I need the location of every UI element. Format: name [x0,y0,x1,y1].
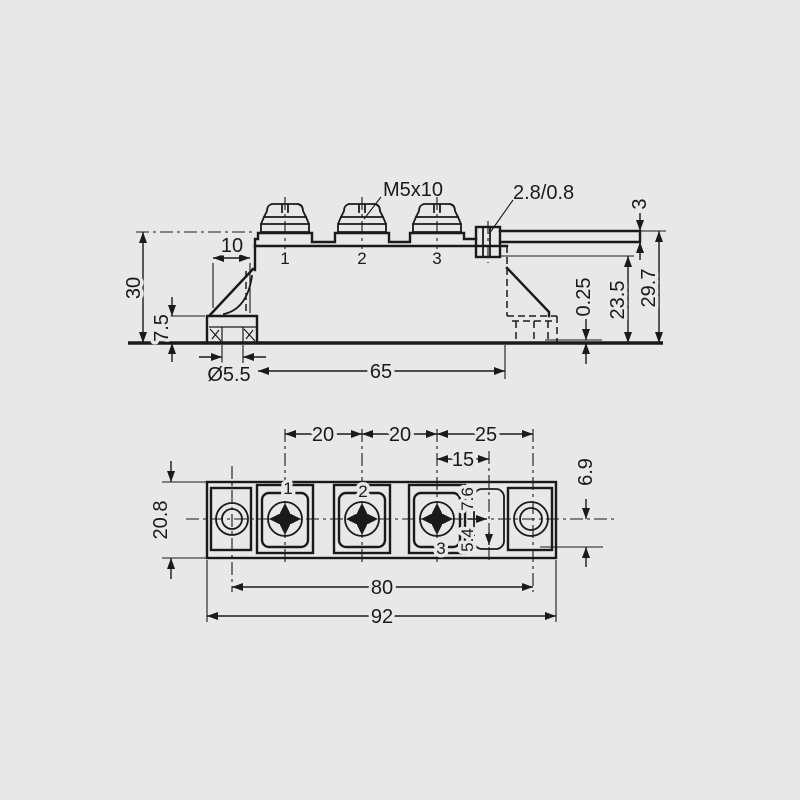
svg-text:0.25: 0.25 [573,278,595,317]
side-terminal-2-label: 2 [357,249,366,268]
top-terminal-1-label: 1 [283,479,292,498]
svg-text:Ø5.5: Ø5.5 [207,364,250,386]
svg-text:15: 15 [452,449,474,471]
svg-text:80: 80 [371,577,393,599]
side-terminal-3-label: 3 [432,249,441,268]
svg-text:10: 10 [221,235,243,257]
top-terminal-3-label: 3 [436,539,445,558]
svg-text:23.5: 23.5 [607,281,629,320]
svg-text:6.9: 6.9 [575,458,597,486]
svg-text:20: 20 [389,424,411,446]
dim-tab-width-b-label: 7.6 [458,487,477,511]
svg-text:30: 30 [123,277,145,299]
svg-text:3: 3 [629,198,651,209]
svg-text:29.7: 29.7 [638,269,660,308]
svg-text:7.5: 7.5 [151,314,173,342]
svg-text:92: 92 [371,606,393,628]
svg-text:65: 65 [370,361,392,383]
svg-text:25: 25 [475,424,497,446]
svg-text:20.8: 20.8 [150,501,172,540]
drawing-background [0,0,800,800]
dimension-drawing: 1 2 3 M5x10 2.8/0.8 30 10 7.5 [0,0,800,800]
svg-text:20: 20 [312,424,334,446]
tab-size-label: 2.8/0.8 [513,182,574,204]
side-terminal-1-label: 1 [280,249,289,268]
thread-size-label: M5x10 [383,179,443,201]
dim-terminal-pitch: 20 20 25 [285,424,533,446]
dim-tab-width-a-label: 5.4 [458,528,477,552]
top-terminal-2-label: 2 [358,482,367,501]
